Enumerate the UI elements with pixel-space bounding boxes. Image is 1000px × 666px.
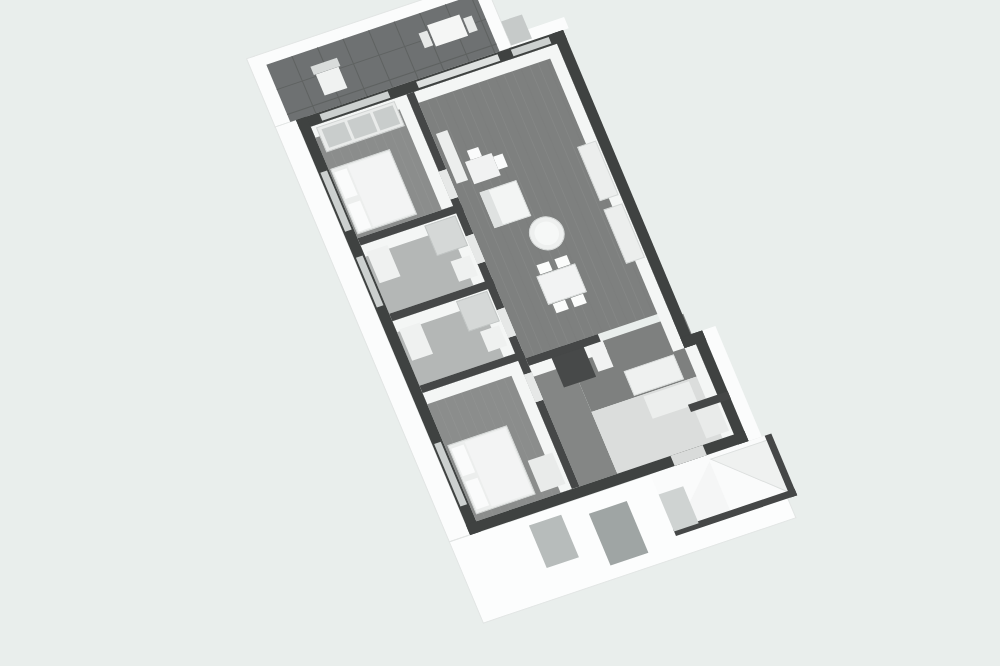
- floorplan-viewport: [0, 0, 1000, 666]
- floorplan-3d-canvas[interactable]: [0, 0, 1000, 666]
